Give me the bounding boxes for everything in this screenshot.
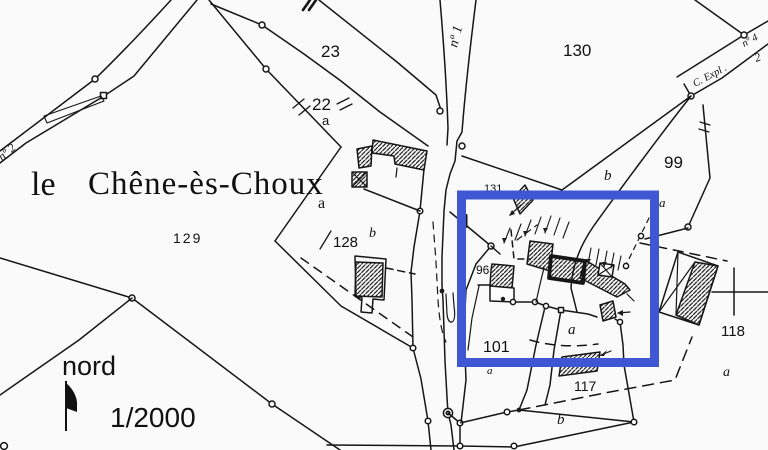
svg-text:b: b — [604, 168, 612, 184]
svg-text:b: b — [557, 412, 565, 428]
svg-text:a: a — [322, 113, 330, 128]
svg-text:b: b — [369, 226, 376, 241]
svg-text:117: 117 — [574, 378, 597, 394]
svg-text:a: a — [568, 322, 576, 338]
svg-text:a: a — [659, 195, 666, 210]
svg-text:130: 130 — [563, 41, 591, 60]
svg-text:101: 101 — [483, 339, 510, 356]
svg-text:a: a — [318, 195, 325, 212]
svg-text:Chêne-ès-Choux: Chêne-ès-Choux — [88, 166, 324, 202]
svg-text:a: a — [723, 365, 730, 380]
svg-text:23: 23 — [321, 42, 340, 61]
svg-text:128: 128 — [333, 234, 358, 251]
svg-text:99: 99 — [664, 153, 683, 172]
svg-text:96: 96 — [476, 263, 490, 277]
svg-text:118: 118 — [721, 323, 745, 340]
svg-text:le: le — [31, 166, 56, 203]
svg-text:129: 129 — [173, 230, 202, 246]
svg-text:22: 22 — [312, 95, 331, 114]
svg-text:1/2000: 1/2000 — [110, 402, 196, 433]
svg-text:nord: nord — [62, 351, 116, 381]
